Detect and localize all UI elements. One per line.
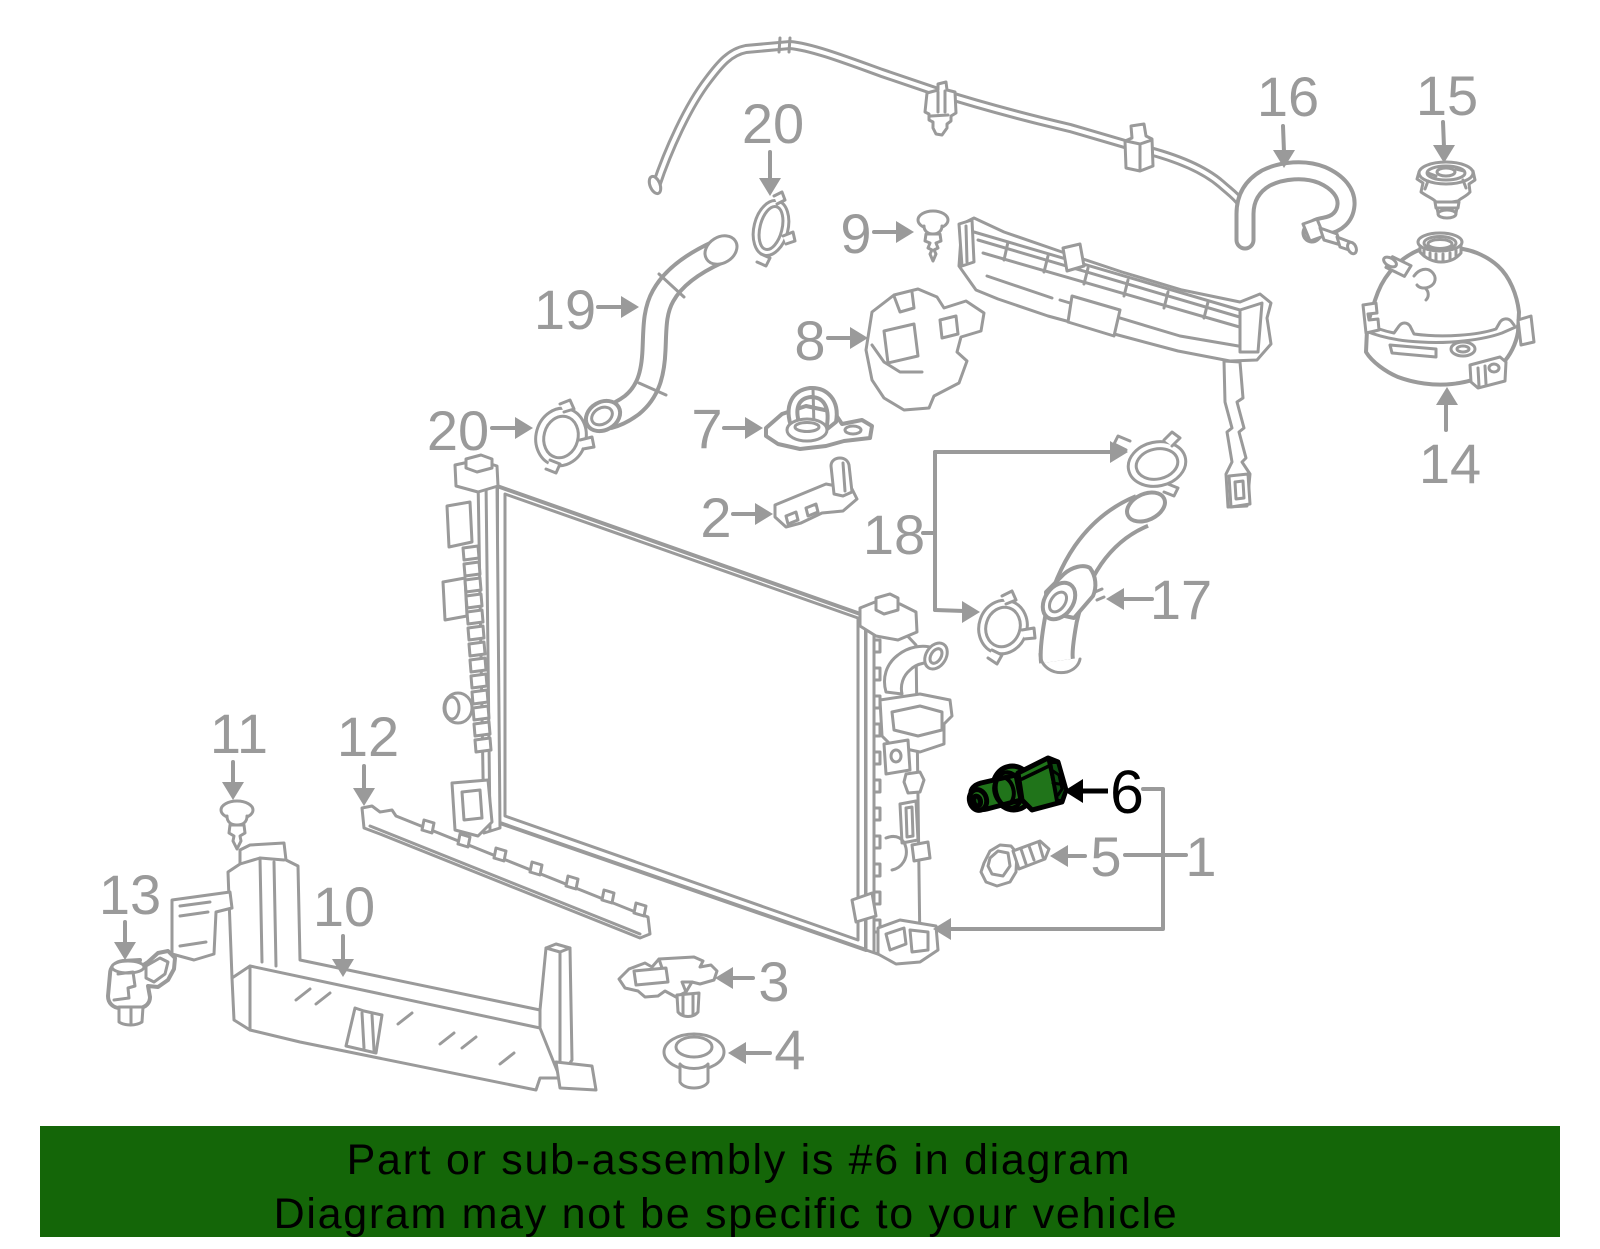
svg-text:5: 5	[1090, 825, 1121, 888]
svg-text:3: 3	[758, 950, 789, 1013]
svg-text:Diagram may not be specific to: Diagram may not be specific to your vehi…	[274, 1190, 1179, 1238]
svg-text:Part or sub-assembly is #6 in: Part or sub-assembly is #6 in diagram	[347, 1136, 1132, 1184]
svg-text:20: 20	[742, 92, 804, 155]
svg-text:17: 17	[1150, 568, 1212, 631]
svg-text:18: 18	[863, 503, 925, 566]
svg-text:1: 1	[1185, 825, 1216, 888]
svg-text:10: 10	[313, 875, 375, 938]
svg-text:13: 13	[99, 863, 161, 926]
svg-text:7: 7	[691, 397, 722, 460]
svg-text:15: 15	[1416, 64, 1478, 127]
svg-text:11: 11	[210, 702, 268, 765]
svg-text:9: 9	[840, 202, 871, 265]
svg-text:6: 6	[1110, 758, 1144, 826]
svg-text:12: 12	[337, 705, 399, 768]
svg-text:8: 8	[794, 309, 825, 372]
svg-text:20: 20	[427, 399, 489, 462]
svg-text:14: 14	[1419, 432, 1481, 495]
svg-text:16: 16	[1257, 65, 1319, 128]
svg-text:2: 2	[700, 486, 731, 549]
svg-text:4: 4	[774, 1018, 805, 1081]
svg-text:19: 19	[534, 278, 596, 341]
